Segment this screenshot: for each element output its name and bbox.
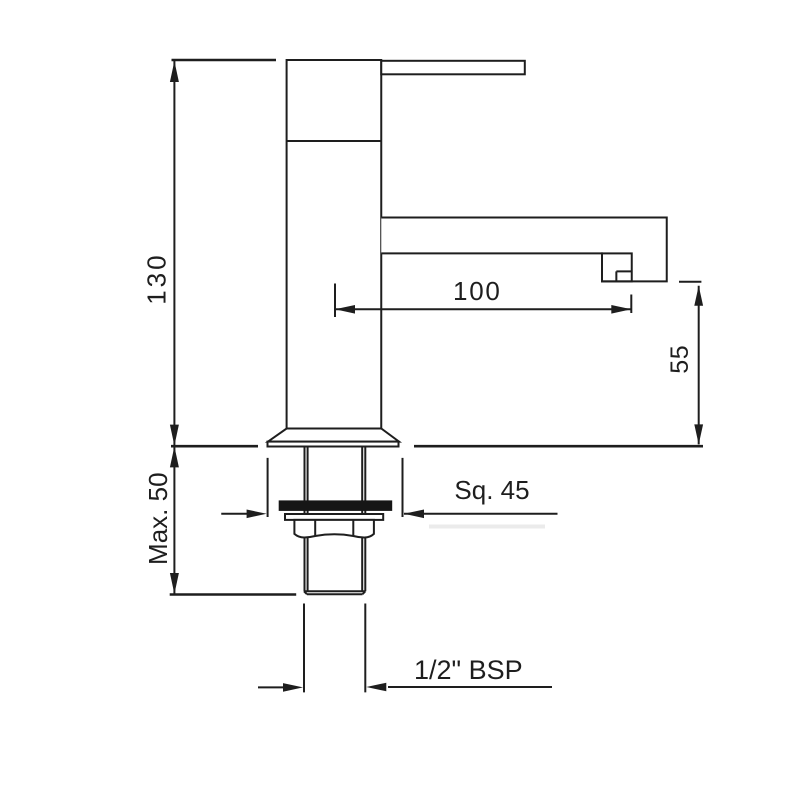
svg-text:100: 100 [453, 276, 501, 306]
svg-text:55: 55 [666, 345, 694, 374]
svg-text:Max. 50: Max. 50 [143, 472, 173, 565]
svg-text:Sq. 45: Sq. 45 [454, 475, 529, 505]
svg-text:130: 130 [141, 252, 171, 304]
svg-text:1/2" BSP: 1/2" BSP [414, 655, 523, 685]
